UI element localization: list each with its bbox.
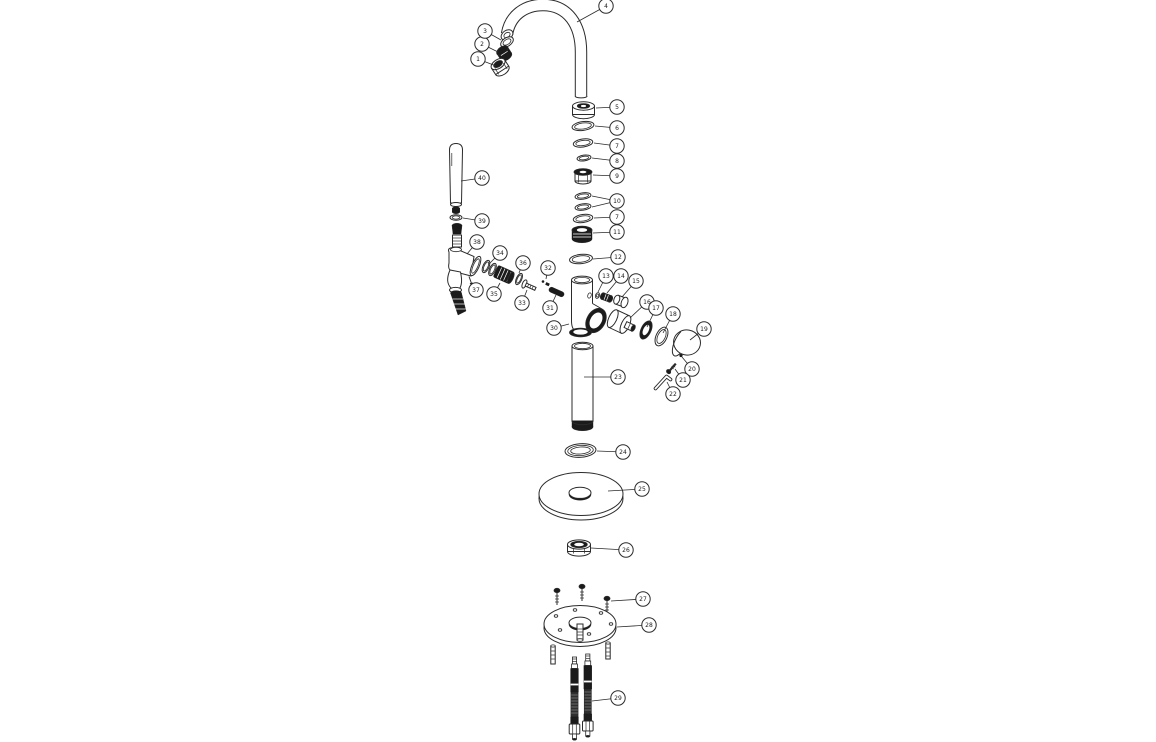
svg-text:31: 31	[546, 305, 554, 312]
svg-text:12: 12	[614, 254, 622, 261]
part-oring-12	[569, 253, 593, 265]
part-grub-bits-32	[542, 280, 550, 286]
part-screw-33	[521, 279, 537, 293]
part-trim-ring-18	[652, 325, 670, 348]
part-insert-14	[599, 292, 613, 303]
svg-text:8: 8	[615, 158, 619, 165]
callout-34: 34	[489, 246, 507, 264]
callout-6: 6	[595, 121, 624, 135]
part-grub-screw-20	[679, 354, 682, 357]
svg-text:38: 38	[473, 239, 481, 246]
callout-19: 19	[690, 322, 711, 340]
svg-text:32: 32	[544, 265, 552, 272]
svg-text:37: 37	[472, 287, 480, 294]
svg-text:13: 13	[602, 273, 610, 280]
callout-10: 10	[592, 194, 624, 208]
svg-text:21: 21	[679, 377, 687, 384]
svg-text:23: 23	[614, 374, 622, 381]
stud	[606, 642, 610, 659]
svg-text:11: 11	[613, 229, 621, 236]
callout-4: 4	[577, 0, 613, 22]
part-oring-6	[571, 120, 594, 132]
svg-text:33: 33	[518, 300, 526, 307]
callout-9: 9	[593, 169, 624, 183]
callout-29: 29	[592, 691, 625, 705]
callout-39: 39	[463, 214, 489, 228]
part-oring-7-lower	[573, 213, 594, 224]
svg-text:7: 7	[615, 143, 619, 150]
part-threaded-bush-11	[572, 226, 592, 243]
hose	[569, 657, 580, 740]
callout-28: 28	[617, 618, 656, 632]
svg-text:36: 36	[519, 260, 527, 267]
part-rod-31	[548, 286, 565, 297]
callout-33: 33	[515, 290, 529, 310]
svg-text:19: 19	[700, 326, 708, 333]
part-oring-10a	[575, 192, 592, 201]
svg-text:3: 3	[483, 28, 487, 35]
svg-text:34: 34	[496, 250, 504, 257]
svg-text:30: 30	[550, 325, 558, 332]
callout-38: 38	[467, 235, 484, 254]
callout-2: 2	[475, 37, 498, 52]
callout-40: 40	[461, 171, 489, 185]
callout-36: 36	[516, 256, 530, 273]
callout-32: 32	[541, 261, 555, 279]
part-spout-collar	[573, 102, 595, 119]
part-cartridge-16	[605, 308, 639, 337]
svg-text:2: 2	[480, 41, 484, 48]
svg-text:20: 20	[688, 366, 696, 373]
callout-27: 27	[611, 592, 650, 606]
svg-text:14: 14	[617, 273, 625, 280]
part-cartridge-nut-17	[637, 319, 654, 341]
svg-text:18: 18	[669, 311, 677, 318]
svg-text:4: 4	[604, 3, 608, 10]
part-plug-15	[612, 294, 629, 309]
part-hoses-29	[569, 654, 593, 740]
screw	[579, 584, 585, 601]
part-cradle-38	[448, 247, 483, 315]
callout-11: 11	[593, 225, 624, 239]
part-cover-plate-25	[539, 473, 623, 521]
part-base-ring-24	[565, 443, 597, 459]
svg-text:27: 27	[639, 596, 647, 603]
svg-text:25: 25	[638, 486, 646, 493]
svg-text:10: 10	[613, 198, 621, 205]
callout-3: 3	[478, 24, 501, 40]
part-standpipe-23	[572, 342, 593, 431]
svg-text:6: 6	[615, 125, 619, 132]
diagram-canvas: 1234567891071112131415161718192021222324…	[0, 0, 1156, 742]
svg-text:39: 39	[478, 218, 486, 225]
callout-8: 8	[592, 154, 624, 168]
part-washer-39	[450, 215, 462, 221]
stud	[551, 645, 555, 664]
part-oring-7-upper	[573, 138, 594, 149]
svg-text:24: 24	[619, 449, 627, 456]
callout-35: 35	[487, 283, 501, 301]
part-seal-ring-13	[595, 292, 601, 299]
part-spout	[499, 5, 587, 98]
callout-5: 5	[596, 100, 624, 114]
callout-30: 30	[547, 321, 569, 335]
svg-text:26: 26	[622, 547, 630, 554]
hose	[583, 654, 594, 737]
part-oring-8	[577, 154, 592, 162]
exploded-parts-diagram: 1234567891071112131415161718192021222324…	[0, 0, 1156, 742]
part-body	[570, 276, 611, 337]
svg-text:7: 7	[615, 214, 619, 221]
svg-text:28: 28	[645, 622, 653, 629]
callout-37: 37	[469, 283, 483, 297]
part-mounting-plate-28	[544, 606, 616, 647]
callout-26: 26	[591, 543, 633, 557]
callout-31: 31	[543, 295, 557, 315]
svg-text:22: 22	[669, 391, 677, 398]
svg-text:40: 40	[478, 175, 486, 182]
svg-text:17: 17	[652, 305, 660, 312]
svg-text:29: 29	[614, 695, 622, 702]
callout-7: 7	[594, 139, 624, 153]
screw	[554, 588, 560, 605]
svg-text:9: 9	[615, 173, 619, 180]
svg-text:35: 35	[490, 291, 498, 298]
part-screw-21	[666, 364, 676, 375]
part-oring-10b	[575, 203, 592, 212]
center-stud	[577, 624, 583, 641]
part-diverter-9	[574, 169, 592, 184]
part-locknut-26	[568, 540, 591, 556]
svg-text:1: 1	[476, 56, 480, 63]
part-hose-cone	[451, 291, 467, 315]
callout-7: 7	[594, 210, 624, 224]
svg-text:5: 5	[615, 104, 619, 111]
part-handset-40	[450, 144, 463, 214]
callout-12: 12	[593, 250, 625, 264]
part-handset-connector	[452, 223, 462, 247]
callout-24: 24	[597, 445, 630, 459]
svg-text:15: 15	[632, 278, 640, 285]
part-hex-key-22	[656, 377, 671, 389]
